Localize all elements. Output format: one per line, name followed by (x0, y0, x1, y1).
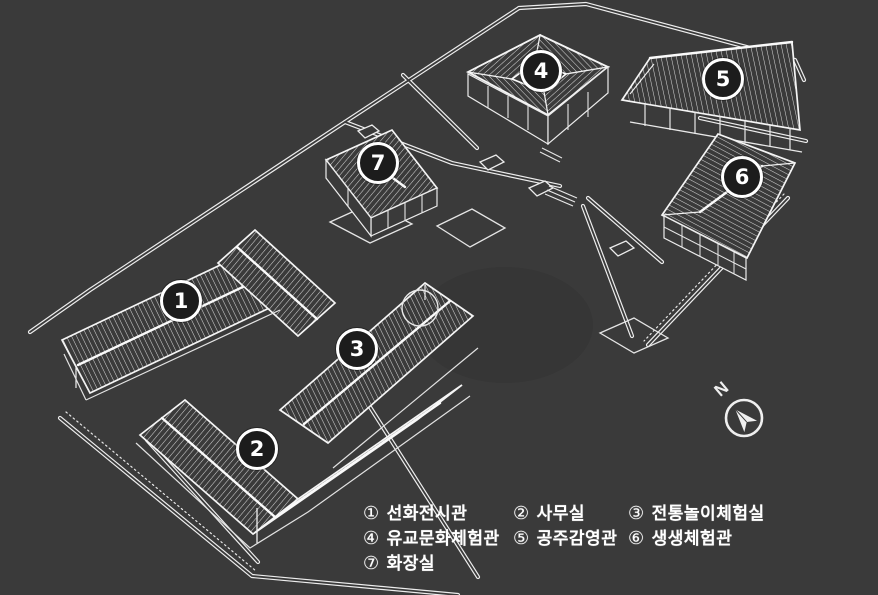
site-map: 1 2 3 4 5 6 7 N ①선화전시관 ②사무실 ③전통놀이체험실 ④유교… (0, 0, 878, 595)
building-1 (62, 230, 335, 400)
building-marker-2: 2 (236, 428, 278, 470)
map-drawing (0, 0, 878, 595)
building-marker-4: 4 (520, 50, 562, 92)
building-marker-5: 5 (702, 58, 744, 100)
building-marker-7: 7 (357, 142, 399, 184)
building-marker-6: 6 (721, 156, 763, 198)
compass (726, 400, 762, 436)
building-marker-1: 1 (160, 280, 202, 322)
building-6 (662, 134, 795, 280)
building-marker-3: 3 (336, 328, 378, 370)
